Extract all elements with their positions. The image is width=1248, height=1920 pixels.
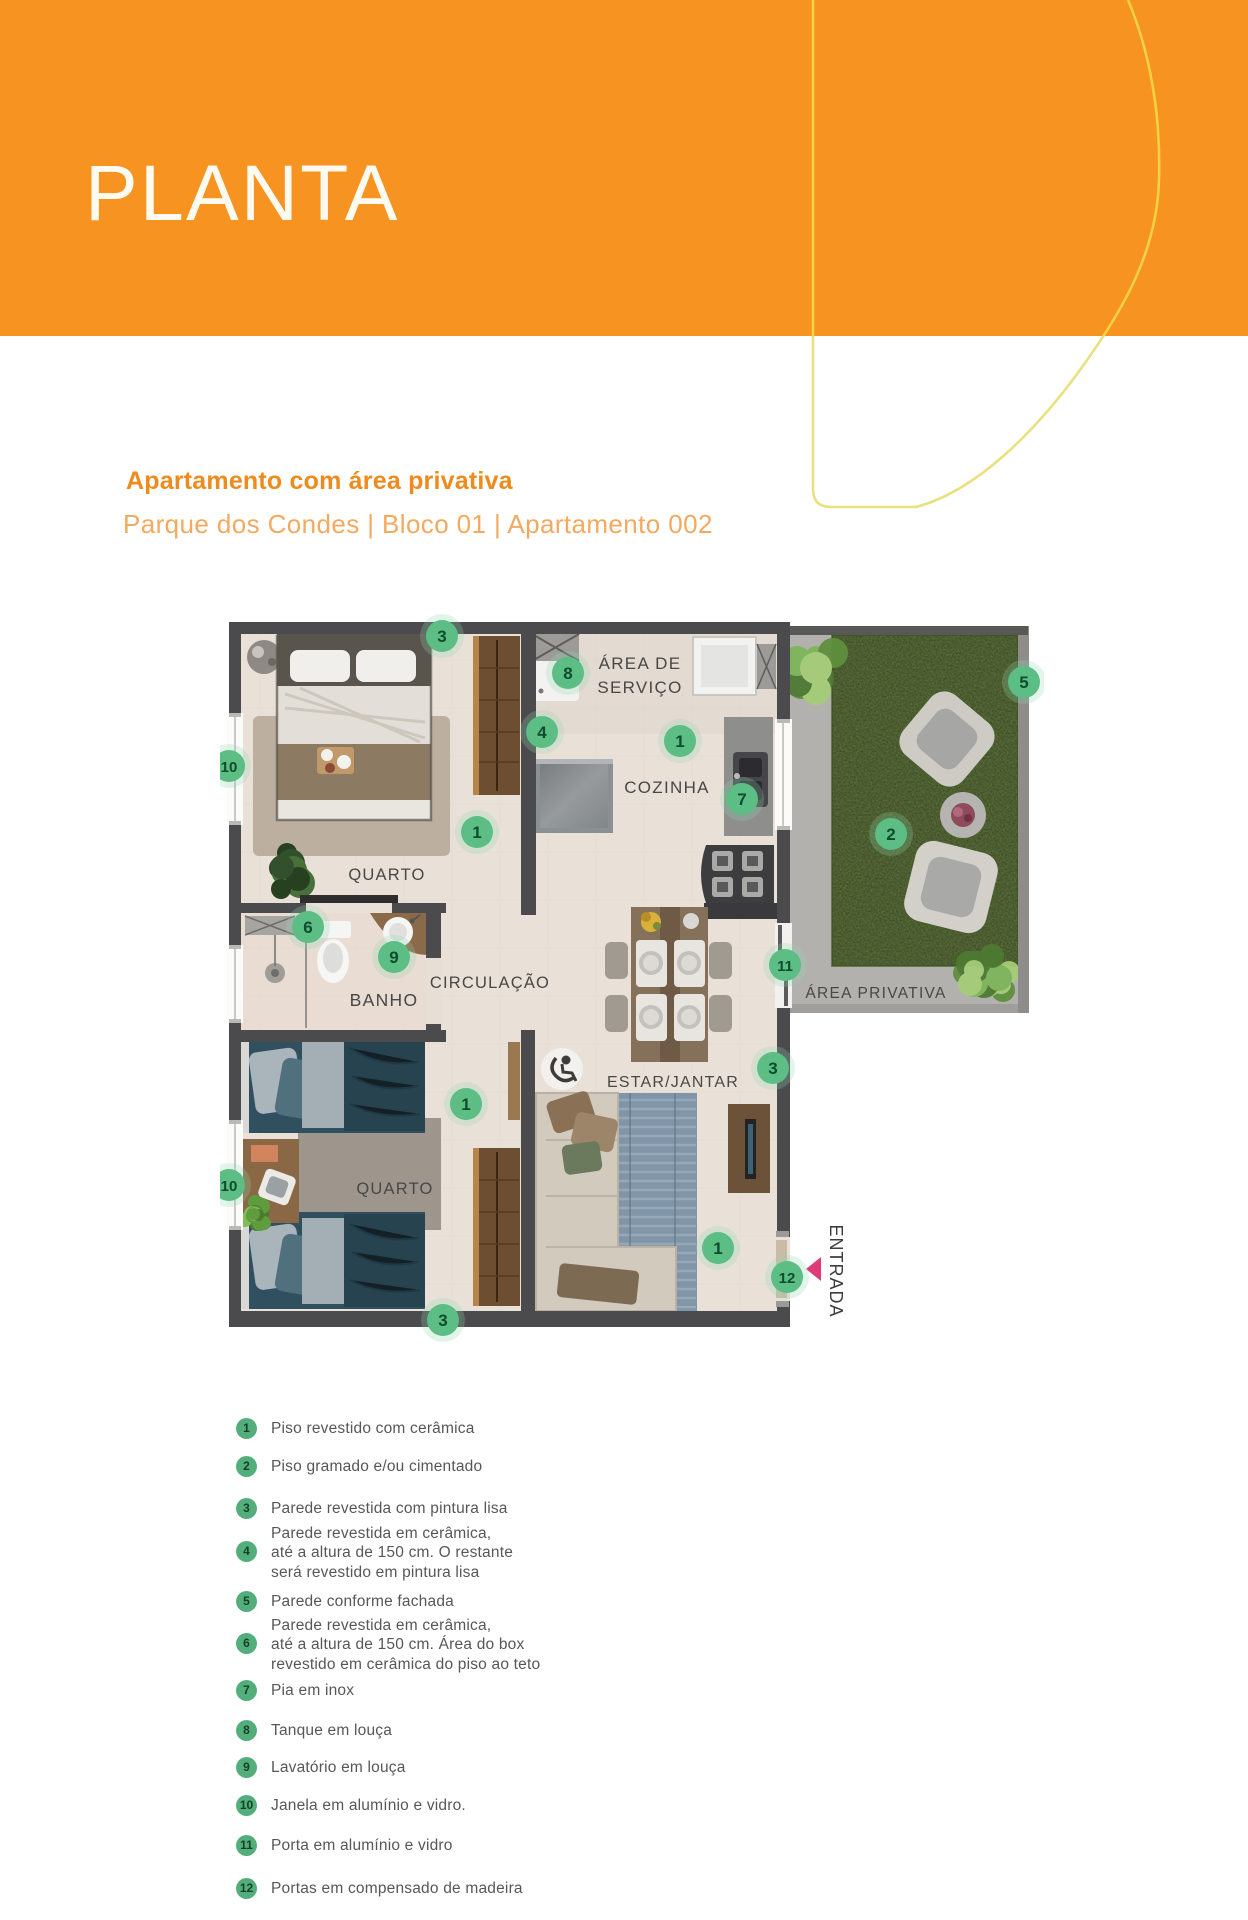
svg-text:1: 1 [461,1095,470,1114]
svg-text:BANHO: BANHO [350,990,419,1010]
svg-text:11: 11 [777,958,793,975]
svg-text:10: 10 [221,1178,238,1195]
svg-text:COZINHA: COZINHA [624,778,710,797]
svg-text:9: 9 [389,948,398,967]
svg-text:6: 6 [303,918,312,937]
svg-text:2: 2 [886,825,895,844]
svg-text:4: 4 [537,723,547,742]
svg-text:8: 8 [563,664,572,683]
svg-text:1: 1 [472,823,481,842]
svg-text:1: 1 [713,1239,722,1258]
svg-text:QUARTO: QUARTO [356,1180,433,1198]
svg-text:3: 3 [437,627,446,646]
svg-text:10: 10 [221,759,238,776]
svg-text:1: 1 [675,732,684,751]
svg-text:12: 12 [779,1270,796,1287]
svg-text:QUARTO: QUARTO [348,866,425,884]
svg-text:ÁREA PRIVATIVA: ÁREA PRIVATIVA [805,985,946,1002]
svg-text:7: 7 [737,790,746,809]
svg-text:SERVIÇO: SERVIÇO [597,678,682,697]
svg-text:5: 5 [1019,673,1028,692]
svg-text:ESTAR/JANTAR: ESTAR/JANTAR [607,1074,739,1091]
svg-text:CIRCULAÇÃO: CIRCULAÇÃO [430,972,550,992]
svg-text:ÁREA DE: ÁREA DE [599,654,682,673]
svg-text:3: 3 [768,1059,777,1078]
svg-text:3: 3 [438,1311,447,1330]
svg-text:ENTRADA: ENTRADA [826,1224,846,1317]
